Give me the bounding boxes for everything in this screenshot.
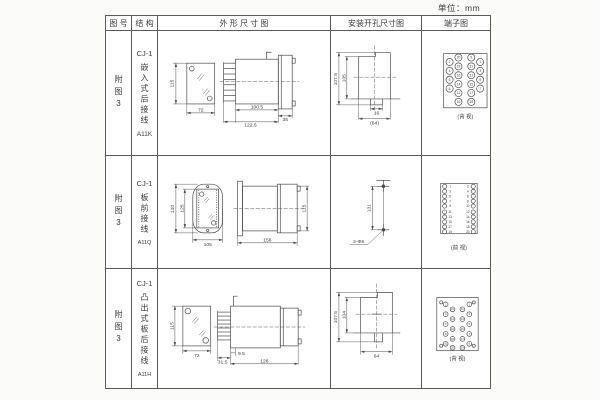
svg-text:14: 14 xyxy=(457,82,461,86)
terminal-pins: 2468101214161820111315171913579 xyxy=(440,300,476,349)
dim-label: 72 xyxy=(194,352,200,358)
outline-cell-row2: 140 125 105 156 115 xyxy=(158,156,331,269)
figure-no-cell-row2: 附图3 xyxy=(106,156,132,269)
svg-text:20: 20 xyxy=(466,229,470,233)
dim-label: 140 xyxy=(170,204,176,213)
terminal-diagram-a11h: 2468101214161820111315171913579 (背 视) xyxy=(422,269,490,389)
relay-front-outline xyxy=(193,184,223,233)
install-cell-row2: 131 2-Φ6 xyxy=(331,156,422,269)
svg-text:7: 7 xyxy=(449,199,451,203)
type-code: A11H xyxy=(138,372,151,378)
svg-text:3: 3 xyxy=(479,69,481,73)
dim-label: 72 xyxy=(198,107,204,113)
install-drawing-a11k: 107.5 105 16 (64) xyxy=(331,31,421,156)
svg-text:19: 19 xyxy=(469,100,473,104)
a11k-front-view: 115 72 xyxy=(169,63,214,116)
dim-label: 31.5 xyxy=(218,359,228,365)
type-code: A11K xyxy=(137,131,152,138)
install-cell-row3: 107.5 104 64 xyxy=(331,269,422,389)
dimensions-table: 图 号 结 构 外 形 尺 寸 图 安装开孔尺寸图 端子图 附图3 CJ-1 嵌… xyxy=(105,15,491,389)
svg-text:10: 10 xyxy=(466,204,470,208)
svg-text:18: 18 xyxy=(457,64,461,68)
dim-label: 9.5 xyxy=(238,350,245,356)
svg-text:8: 8 xyxy=(449,86,451,90)
header-figure-no: 图 号 xyxy=(106,16,132,31)
header-install: 安装开孔尺寸图 xyxy=(331,16,422,31)
dim-label: 100.5 xyxy=(251,104,264,110)
dim-label: 16 xyxy=(374,110,380,116)
datasheet-page: { "unit_label": "单位：mm", "table": { "hea… xyxy=(0,0,600,400)
terminal-cell-row1: 2018161412109111315171924681357 (背 视) xyxy=(422,31,491,156)
svg-text:4: 4 xyxy=(449,69,451,73)
svg-text:5: 5 xyxy=(449,194,451,198)
svg-text:14: 14 xyxy=(466,215,470,219)
dim-label: 104 xyxy=(341,310,347,318)
a11h-front-view: 115 72 xyxy=(169,306,210,359)
install-drawing-a11q: 131 2-Φ6 xyxy=(331,156,421,269)
holes-callout: 2-Φ6 xyxy=(353,239,364,245)
svg-text:16: 16 xyxy=(457,73,461,77)
terminal-pins: 2018161412109111315171924681357 xyxy=(446,53,484,104)
a11h-side-view: 9.5 31.5 126 xyxy=(214,296,305,365)
socket-flange-outline xyxy=(278,55,292,109)
svg-text:6: 6 xyxy=(445,321,447,325)
model-label: CJ-1 xyxy=(137,279,153,288)
view-label: (前 视) xyxy=(451,243,467,251)
svg-text:15: 15 xyxy=(469,82,473,86)
svg-text:2: 2 xyxy=(445,302,447,306)
outline-cell-row3: 115 72 9.5 xyxy=(158,269,331,389)
dim-label: 64 xyxy=(374,353,380,359)
svg-text:13: 13 xyxy=(448,215,452,219)
structure-desc: 板前接线 xyxy=(139,193,150,235)
dim-label: 107.5 xyxy=(333,72,339,85)
dim-label: 115 xyxy=(302,204,308,212)
structure-cell-row1: CJ-1 嵌入式后接线 A11K xyxy=(132,31,158,156)
svg-text:19: 19 xyxy=(448,229,452,233)
svg-text:17: 17 xyxy=(448,224,452,228)
terminal-pins: 1357911131517192468101214161820 xyxy=(443,184,476,234)
header-install-label: 安装开孔尺寸图 xyxy=(348,18,404,29)
svg-text:1: 1 xyxy=(469,302,471,306)
svg-text:6: 6 xyxy=(467,194,469,198)
svg-text:11: 11 xyxy=(470,64,474,68)
svg-text:20: 20 xyxy=(457,55,461,59)
figure-no: 附图3 xyxy=(113,310,124,347)
dim-label: 115 xyxy=(169,321,175,329)
structure-cell-row3: CJ-1 凸出式板后接线 A11H xyxy=(132,269,158,389)
install-drawing-a11h: 107.5 104 64 xyxy=(331,269,421,389)
svg-text:2: 2 xyxy=(449,60,451,64)
view-label: (背 视) xyxy=(457,112,473,120)
svg-text:5: 5 xyxy=(479,77,481,81)
header-structure-label: 结 构 xyxy=(135,18,153,29)
outline-drawing-a11h: 115 72 9.5 xyxy=(158,269,330,389)
terminal-diagram-a11q: 1357911131517192468101214161820 (前 视) xyxy=(422,156,490,269)
svg-text:11: 11 xyxy=(448,210,452,214)
svg-text:13: 13 xyxy=(469,73,473,77)
model-label: CJ-1 xyxy=(137,179,153,188)
dim-label: 126 xyxy=(260,358,269,364)
header-outline-label: 外 形 尺 寸 图 xyxy=(220,18,269,29)
svg-text:9: 9 xyxy=(470,55,472,59)
header-terminal-label: 端子图 xyxy=(444,18,468,29)
svg-text:15: 15 xyxy=(448,219,452,223)
figure-no: 附图3 xyxy=(113,75,124,112)
outline-cell-row1: 115 72 1 xyxy=(158,31,331,156)
model-label: CJ-1 xyxy=(137,49,153,58)
svg-text:7: 7 xyxy=(479,86,481,90)
svg-text:18: 18 xyxy=(466,224,470,228)
structure-cell-row2: CJ-1 板前接线 A11Q xyxy=(132,156,158,269)
header-terminal: 端子图 xyxy=(422,16,491,31)
svg-text:8: 8 xyxy=(445,331,447,335)
dim-label: (64) xyxy=(370,120,379,126)
terminal-block-outline xyxy=(441,183,477,233)
header-structure: 结 构 xyxy=(132,16,158,31)
terminal-diagram-a11k: 2018161412109111315171924681357 (背 视) xyxy=(422,31,490,156)
structure-desc: 嵌入式后接线 xyxy=(139,63,150,126)
svg-text:16: 16 xyxy=(466,219,470,223)
structure-desc: 凸出式板后接线 xyxy=(139,293,150,367)
svg-text:9: 9 xyxy=(449,204,451,208)
svg-text:4: 4 xyxy=(445,312,447,316)
dim-label: 35 xyxy=(282,116,288,122)
a11k-side-view: 100.5 35 122.5 xyxy=(220,52,300,128)
outline-drawing-a11k: 115 72 1 xyxy=(158,31,330,156)
figure-no-cell-row3: 附图3 xyxy=(106,269,132,389)
type-code: A11Q xyxy=(138,240,152,246)
a11q-front-view: 140 125 105 xyxy=(170,184,223,248)
svg-text:9: 9 xyxy=(469,341,471,345)
dim-label: 131 xyxy=(367,203,373,211)
install-cell-row1: 107.5 105 16 (64) xyxy=(331,31,422,156)
relay-front-outline xyxy=(183,306,211,346)
svg-text:12: 12 xyxy=(457,91,461,95)
dim-label: 122.5 xyxy=(244,122,257,128)
outline-drawing-a11q: 140 125 105 156 115 xyxy=(158,156,330,269)
dim-label: 107.5 xyxy=(333,310,339,323)
svg-text:10: 10 xyxy=(457,100,461,104)
dim-label: 125 xyxy=(179,204,185,213)
dim-label: 115 xyxy=(169,79,175,87)
terminal-cell-row3: 2468101214161820111315171913579 (背 视) xyxy=(422,269,491,389)
unit-label: 单位：mm xyxy=(438,2,480,14)
svg-text:17: 17 xyxy=(469,91,473,95)
svg-text:3: 3 xyxy=(449,189,451,193)
relay-front-outline xyxy=(187,63,215,104)
svg-text:1: 1 xyxy=(479,60,481,64)
svg-text:4: 4 xyxy=(467,189,469,193)
svg-text:5: 5 xyxy=(469,321,471,325)
dim-label: 105 xyxy=(204,241,213,247)
header-figure-no-label: 图 号 xyxy=(109,18,127,29)
svg-text:2: 2 xyxy=(467,184,469,188)
svg-text:3: 3 xyxy=(469,312,471,316)
a11q-side-view: 156 115 xyxy=(234,181,310,246)
dim-label: 156 xyxy=(263,237,272,243)
svg-text:8: 8 xyxy=(467,199,469,203)
figure-no-cell-row1: 附图3 xyxy=(106,31,132,156)
svg-text:7: 7 xyxy=(469,331,471,335)
figure-no: 附图3 xyxy=(113,194,124,231)
svg-text:1: 1 xyxy=(449,184,451,188)
svg-text:6: 6 xyxy=(449,77,451,81)
dim-label: 105 xyxy=(341,73,347,81)
header-outline: 外 形 尺 寸 图 xyxy=(158,16,331,31)
terminal-cell-row2: 1357911131517192468101214161820 (前 视) xyxy=(422,156,491,269)
view-label: (背 视) xyxy=(450,354,466,362)
svg-text:12: 12 xyxy=(466,210,470,214)
